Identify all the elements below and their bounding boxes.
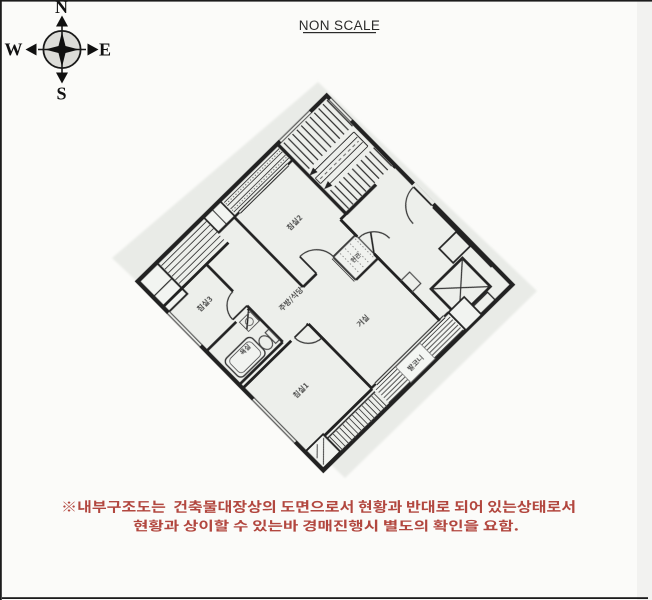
svg-text:E: E — [99, 40, 111, 60]
svg-text:N: N — [55, 0, 68, 17]
svg-text:W: W — [5, 40, 23, 60]
svg-text:S: S — [56, 84, 66, 104]
svg-text:NON SCALE: NON SCALE — [299, 18, 381, 33]
